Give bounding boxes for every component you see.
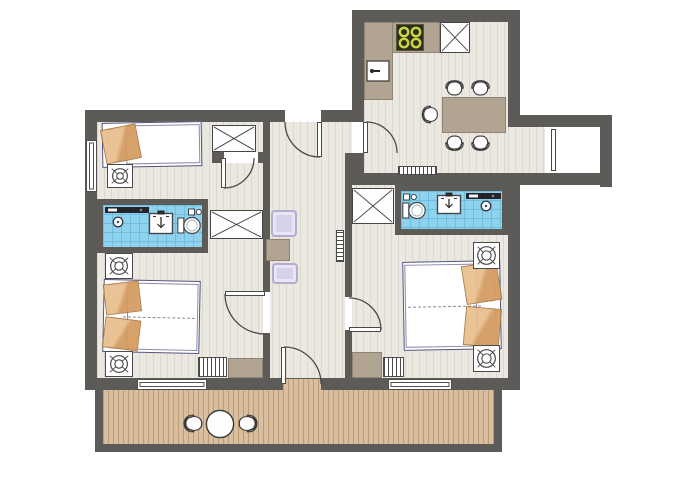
bed-bedroom2 bbox=[102, 279, 201, 354]
door-leaf-bedroom3 bbox=[349, 327, 381, 332]
dining-chair-3 bbox=[443, 133, 466, 155]
wall-hall-left-upper bbox=[263, 122, 270, 292]
hall-rug-upper bbox=[271, 210, 297, 237]
desk-bedroom2 bbox=[228, 358, 263, 378]
radiator-hall bbox=[336, 230, 344, 262]
wall-kitchen-hall-corner bbox=[345, 153, 364, 173]
accessory-bathroom-left bbox=[188, 208, 202, 216]
kitchen-sink bbox=[366, 60, 390, 82]
washbasin-bathroom-left bbox=[148, 210, 174, 235]
wall-hall-right-lower bbox=[345, 330, 352, 378]
door-leaf-terrace bbox=[281, 347, 286, 384]
wall-kitchen-right bbox=[508, 10, 520, 127]
hall-rug-lower bbox=[272, 263, 298, 284]
plant-table-bedroom3-top bbox=[473, 242, 500, 269]
bed-bedroom3 bbox=[402, 260, 502, 351]
hall-cabinet bbox=[266, 239, 290, 261]
window-bedroom1-left bbox=[86, 140, 97, 192]
doorway-bedroom3 bbox=[345, 297, 352, 330]
terrace-frame-right bbox=[494, 390, 502, 452]
fridge-unit bbox=[440, 22, 470, 53]
plant-table-bedroom3-bottom bbox=[473, 345, 500, 372]
terrace-deck bbox=[103, 390, 494, 444]
plant-table-bedroom1 bbox=[107, 164, 133, 188]
plant-table-bedroom2-top bbox=[105, 253, 133, 279]
dining-chair-4 bbox=[469, 133, 492, 155]
toilet-bathroom-left bbox=[177, 215, 201, 236]
terrace-chair-right bbox=[236, 413, 263, 435]
radiator-bedroom3 bbox=[383, 357, 404, 377]
dining-chair-1 bbox=[443, 76, 466, 98]
washbasin-bathroom-right bbox=[436, 192, 462, 215]
terrace-frame-left bbox=[95, 390, 103, 452]
radiator-bedroom2 bbox=[198, 357, 227, 377]
vanity-bathroom-left bbox=[105, 207, 149, 229]
window-bedroom2-bottom bbox=[137, 379, 207, 390]
bed-bedroom1 bbox=[102, 121, 203, 168]
wall-top-main bbox=[85, 110, 364, 122]
doorway-bedroom1 bbox=[224, 152, 258, 163]
terrace-door-threshold bbox=[283, 379, 321, 390]
doorway-bedroom2 bbox=[263, 292, 270, 333]
vanity-bathroom-right bbox=[466, 193, 501, 213]
wall-kitchen-left bbox=[352, 10, 364, 122]
dining-table bbox=[442, 97, 506, 133]
desk-bedroom3 bbox=[352, 352, 382, 378]
plant-table-bedroom2-bottom bbox=[105, 351, 133, 377]
door-leaf-hall-top bbox=[317, 122, 322, 157]
dining-chair-5 bbox=[418, 104, 441, 126]
wall-bedroom1-stub-right bbox=[258, 152, 266, 163]
wardrobe-hall-left bbox=[210, 210, 263, 239]
terrace-table bbox=[205, 409, 235, 439]
wardrobe-bedroom1 bbox=[212, 125, 256, 152]
accessory-bathroom-right bbox=[403, 193, 417, 201]
wall-corridor-top bbox=[508, 115, 612, 127]
floor-plan bbox=[0, 0, 700, 500]
toilet-bathroom-right bbox=[402, 200, 426, 221]
doorway-hall-top bbox=[285, 110, 321, 122]
dining-chair-2 bbox=[469, 76, 492, 98]
wall-kitchen-top bbox=[352, 10, 520, 22]
window-bedroom3-bottom bbox=[388, 379, 452, 390]
terrace-chair-left bbox=[179, 413, 206, 435]
terrace-frame-bottom bbox=[95, 444, 502, 452]
door-leaf-bedroom1 bbox=[221, 158, 226, 188]
wall-right-main bbox=[508, 173, 520, 390]
door-leaf-bedroom2 bbox=[225, 291, 265, 296]
floor-corridor bbox=[508, 127, 545, 173]
entry-door-leaf bbox=[551, 129, 556, 171]
wardrobe-hall-right bbox=[352, 188, 394, 224]
radiator-corridor bbox=[398, 166, 437, 175]
wall-corridor-bottom bbox=[508, 173, 612, 185]
stove bbox=[396, 24, 424, 51]
door-leaf-kitchen bbox=[363, 122, 368, 153]
wall-hall-left-lower bbox=[263, 333, 270, 378]
